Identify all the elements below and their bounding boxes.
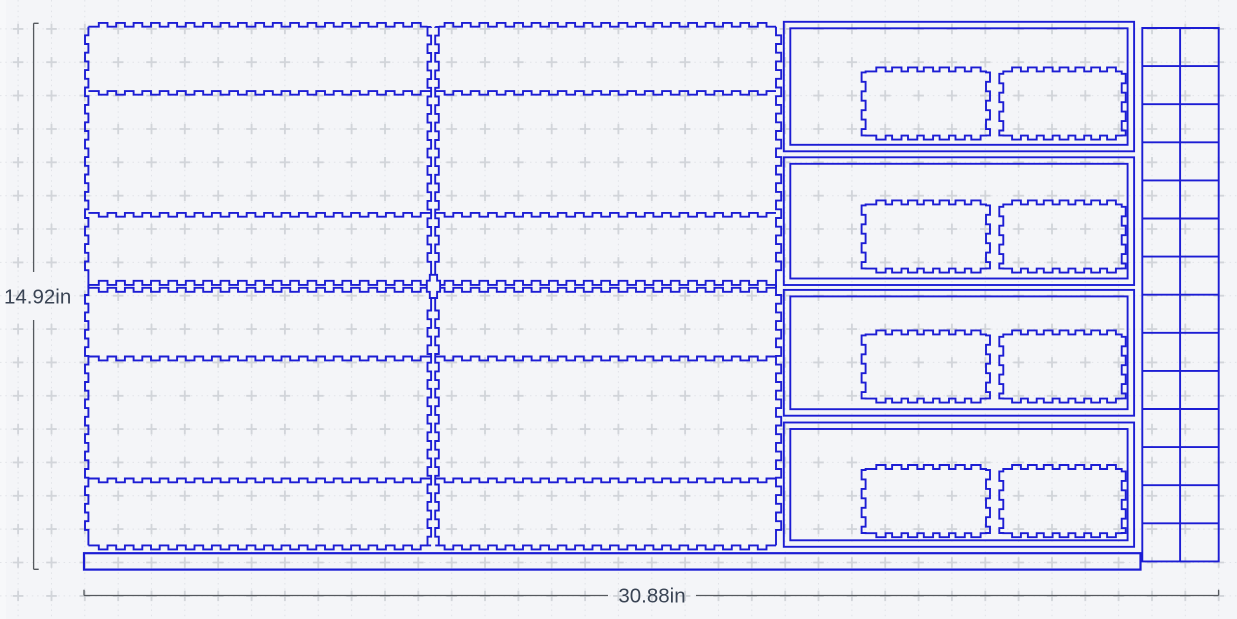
svg-text:30.88in: 30.88in bbox=[618, 585, 685, 608]
svg-text:14.92in: 14.92in bbox=[4, 286, 71, 309]
